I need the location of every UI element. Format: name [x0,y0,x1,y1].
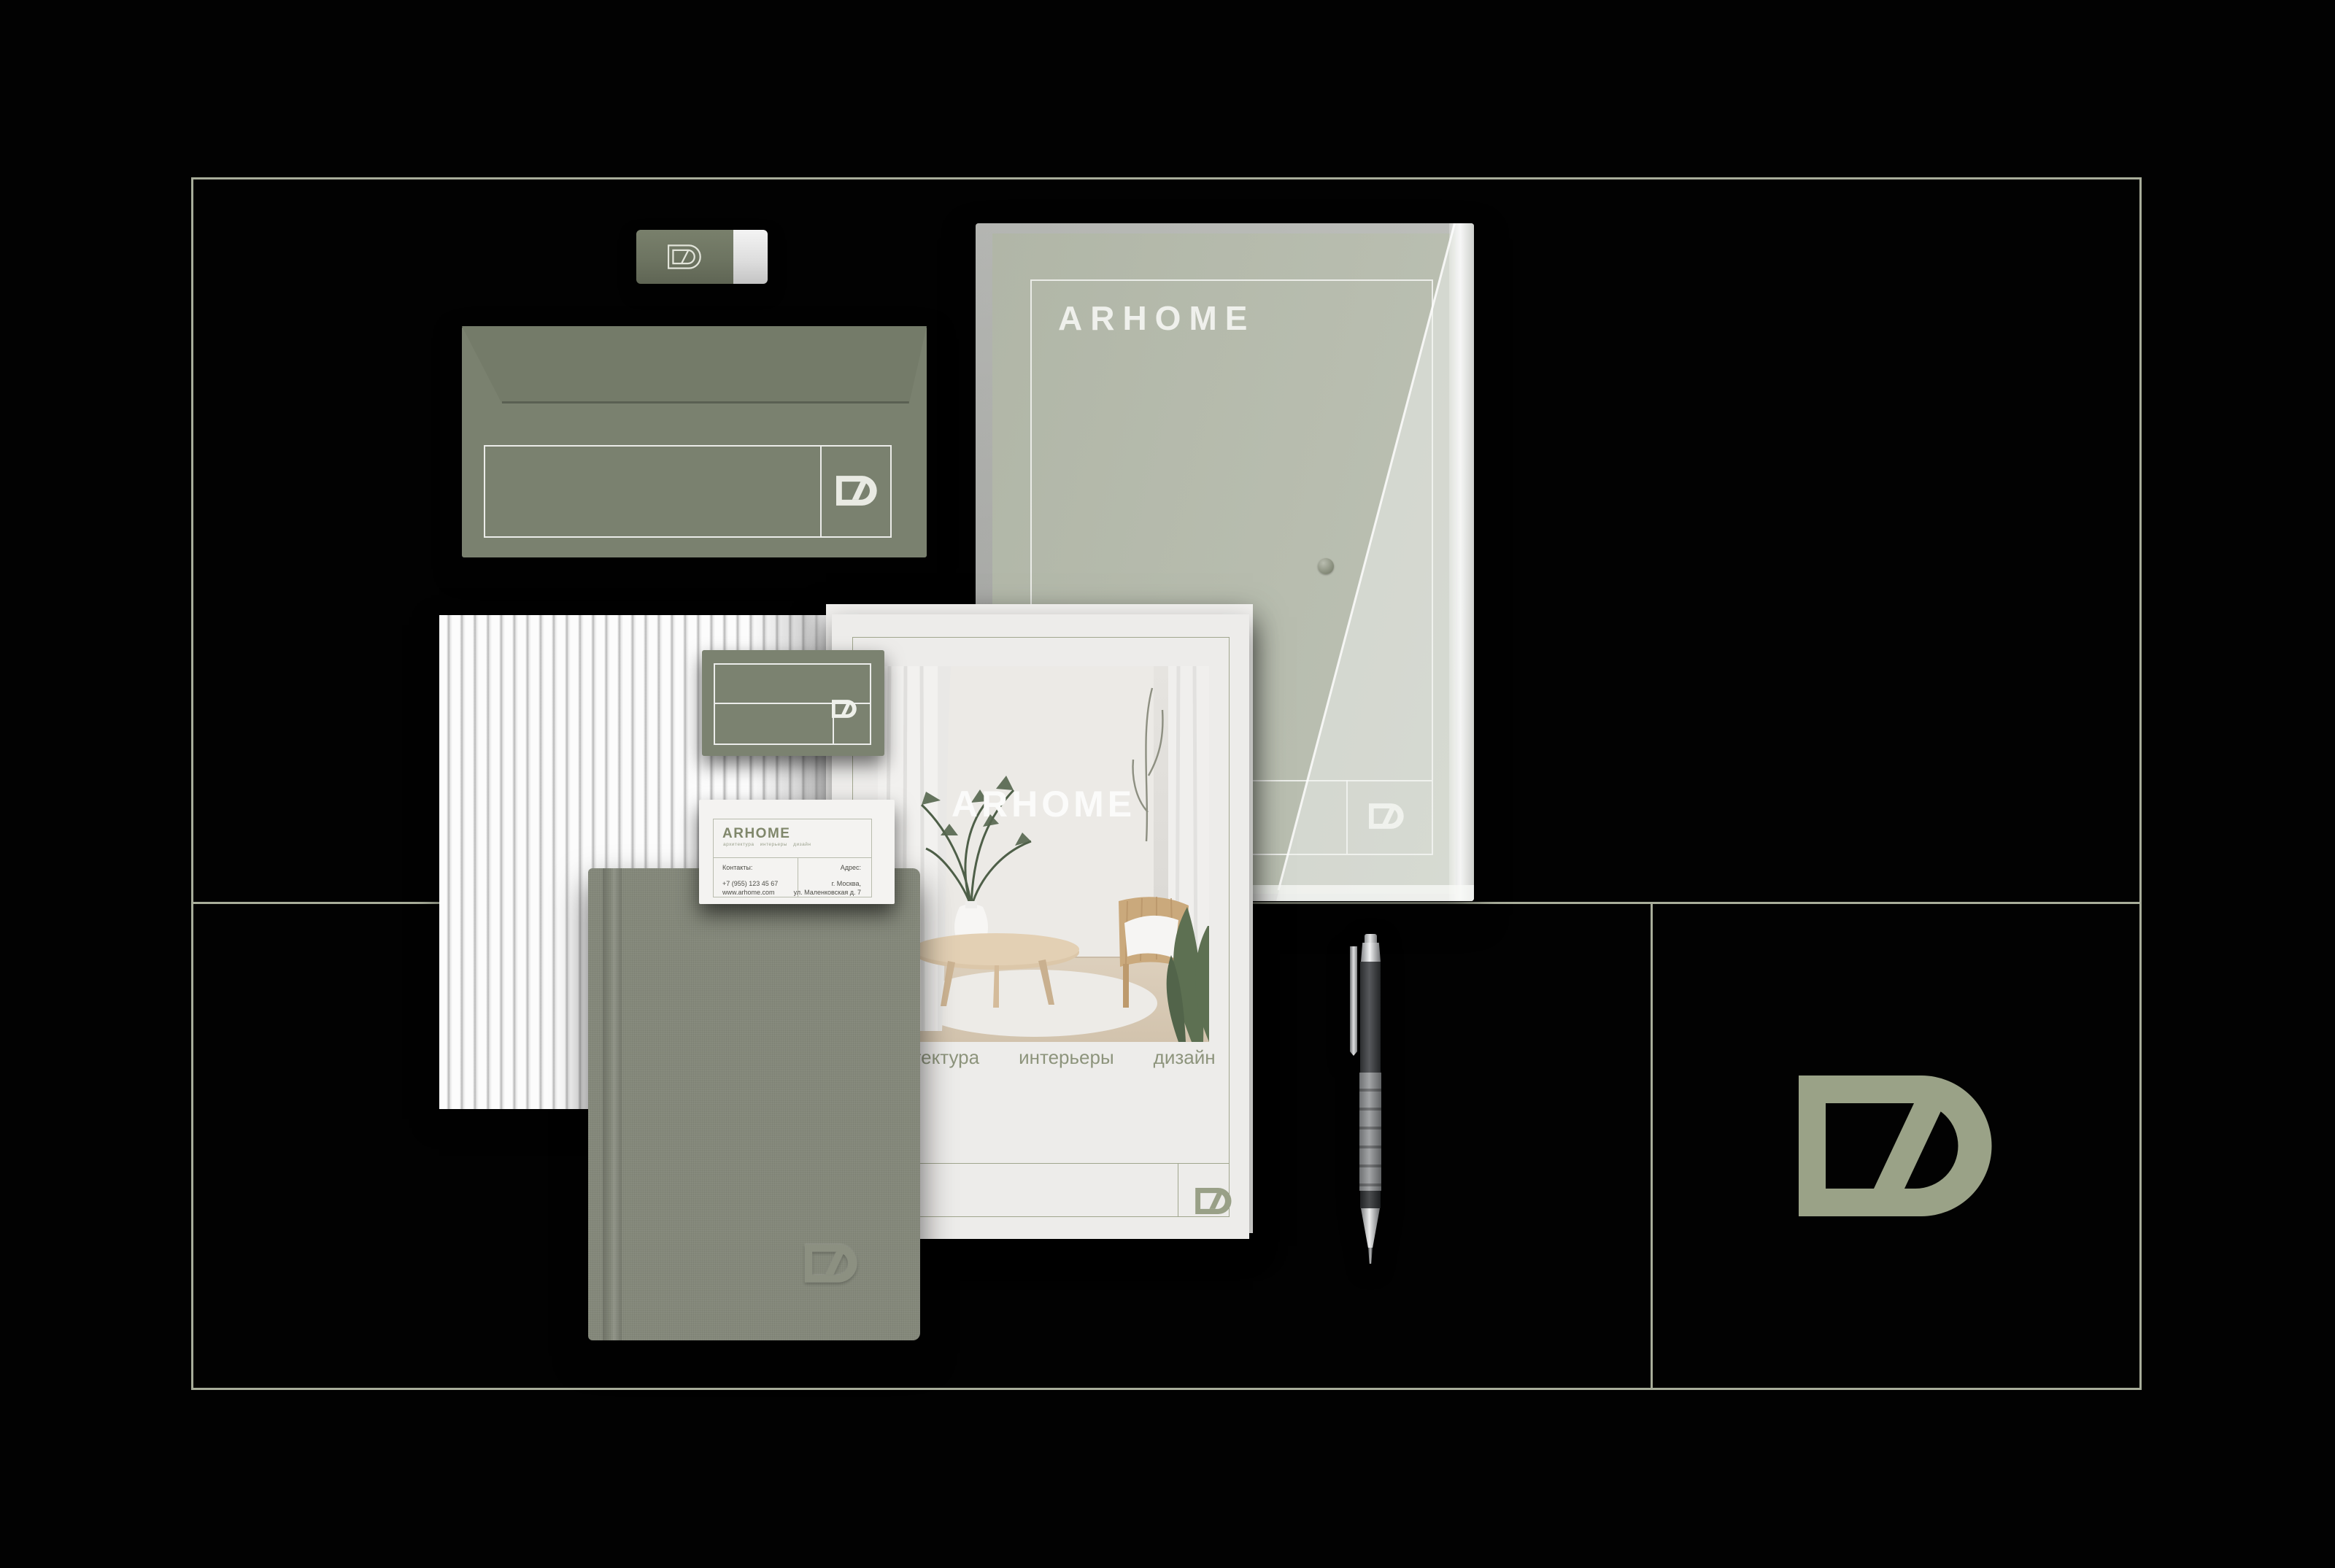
dz-logo-icon [1195,1188,1232,1214]
envelope [462,326,927,557]
usb-drive [636,230,768,284]
dz-logo-icon [832,700,857,718]
pen-cone [1361,1208,1380,1248]
card-front-rule-box: ARHOME архитектура интерьеры дизайн Конт… [713,819,872,897]
usb-drive-cap [733,230,768,284]
envelope-flap [462,326,927,403]
dz-logo-embossed-icon [805,1244,857,1283]
envelope-strip-divider [820,447,822,536]
interior-photo: ARHOME [878,666,1209,1042]
notebook-spine [603,868,622,1340]
magazine-divider-vline [1178,1163,1178,1216]
business-card-front: ARHOME архитектура интерьеры дизайн Конт… [699,800,895,904]
pen-ring [1360,1191,1381,1208]
card-address-line1: г. Москва, [832,880,861,887]
tagline-word: дизайн [1154,1046,1216,1069]
frame-right-line [2139,177,2142,1390]
card-front-divider-line [714,857,871,858]
contacts-label: Контакты: [722,863,792,872]
card-tagline: архитектура интерьеры дизайн [723,842,811,847]
frame-vertical-divider [1651,902,1653,1390]
ballpoint-pen [1345,934,1396,1273]
card-address-cell: Адрес: г. Москва, ул. Маленковская д. 7 [791,863,861,897]
folder-snap-button [1318,558,1334,574]
tagline-word: интерьеры [1019,1046,1114,1069]
address-label: Адрес: [791,863,861,872]
frame-left-line [191,177,193,1390]
frame-top-line [191,177,2142,179]
pen-grip [1359,1073,1381,1191]
linen-notebook [588,868,920,1340]
pen-collar [1361,943,1381,962]
envelope-address-strip [484,445,892,538]
card-website: www.arhome.com [722,889,775,896]
card-address-line2: ул. Маленковская д. 7 [794,889,861,896]
mockup-scene: ARHOME [0,0,2335,1568]
magazine-title: ARHOME [878,783,1209,825]
pen-clip [1350,946,1357,1056]
business-card-back [702,650,884,756]
magazine-tagline: архитектура интерьеры дизайн [878,1046,1209,1069]
pen-tip [1368,1248,1373,1264]
card-contacts-cell: Контакты: +7 (955) 123 45 67 www.arhome.… [722,863,792,897]
pen-barrel [1360,962,1381,1073]
folder-right-fold [1449,223,1474,901]
dz-logo-large [1799,1075,1993,1216]
card-phone: +7 (955) 123 45 67 [722,880,778,887]
dz-logo-outline-icon [668,244,701,269]
pen-crown [1365,934,1377,943]
dz-logo-icon [836,476,877,506]
card-brand-name: ARHOME [722,826,790,842]
frame-bottom-line [191,1388,2142,1390]
